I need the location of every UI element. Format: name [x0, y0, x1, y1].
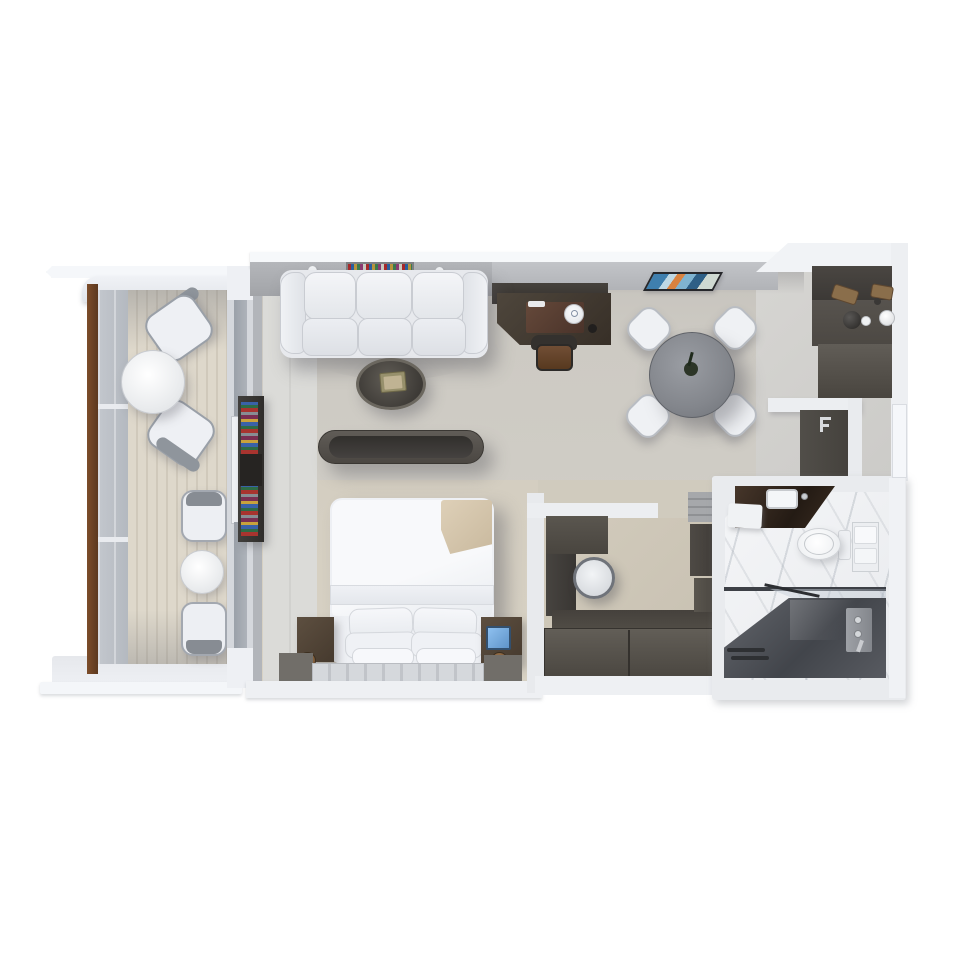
bedroom-bottom-wall [246, 681, 542, 698]
sofa-back-cushion-1 [304, 272, 356, 320]
entry-door-threshold [892, 404, 907, 478]
bookshelf-shelf-mid [240, 454, 262, 486]
bookshelf-books-bottom [241, 486, 258, 536]
balcony-wood-rail [87, 284, 98, 674]
bar-kettle [843, 311, 861, 329]
towel-2 [854, 548, 877, 564]
armchair-2-back [186, 640, 222, 654]
floorplan-canvas [0, 0, 960, 960]
shower-knob-1 [854, 616, 862, 624]
closet-stool [573, 557, 615, 599]
sofa-seat-cushion-2 [358, 318, 412, 356]
coffee-table-book-top [383, 375, 402, 390]
nightstand-screen [486, 626, 511, 650]
sofa-seat-cushion-1 [302, 318, 358, 356]
fridge-handle-t [823, 417, 831, 420]
desk-plate-mark [571, 310, 578, 317]
desk-knob [588, 324, 597, 333]
bar-cup [861, 316, 871, 326]
bookshelf-books-top [241, 402, 258, 454]
balcony-dining-table [121, 350, 185, 414]
bar-small-item [874, 298, 881, 305]
closet-wardrobe-top [546, 516, 608, 554]
glass-mullion-2 [98, 537, 128, 542]
entry-wall-art [643, 272, 723, 291]
sofa-back-cushion-2 [356, 272, 412, 320]
entry-side-wall [848, 398, 862, 480]
towel-1 [854, 526, 877, 544]
balcony-glass-rail [98, 290, 128, 664]
bed-tuck-band [330, 585, 494, 605]
hull-strip-bottom [40, 682, 242, 694]
desk-pen-tray [528, 301, 545, 307]
sofa-seat-cushion-3 [412, 318, 466, 356]
vanity-faucet [801, 493, 808, 500]
sofa-back-cushion-3 [412, 272, 464, 320]
dining-centerpiece [684, 362, 698, 376]
glass-mullion-1 [98, 404, 128, 409]
towel-bar-2 [731, 656, 769, 660]
bar-cabinet-front [818, 344, 892, 398]
fridge-handle-m [823, 424, 829, 427]
closet-bottom-wall [535, 676, 727, 695]
bathroom-right-wall [889, 478, 905, 698]
closet-dresser-top [552, 610, 712, 630]
closet-dresser-seam [628, 630, 630, 676]
bar-carafe [879, 310, 895, 326]
media-console-inner [329, 436, 473, 458]
toilet-seat-line [804, 533, 834, 555]
shower-knob-2 [854, 630, 862, 638]
closet-left-wall [527, 493, 544, 693]
armchair-1-back [186, 492, 222, 506]
closet-wardrobe-left [546, 554, 576, 616]
balcony-side-table [180, 550, 224, 594]
desk-chair-seat [536, 344, 573, 371]
bed-throw [441, 500, 492, 554]
vanity-sink [766, 489, 798, 509]
vanity-mat [727, 503, 762, 529]
towel-bar-1 [727, 648, 765, 652]
